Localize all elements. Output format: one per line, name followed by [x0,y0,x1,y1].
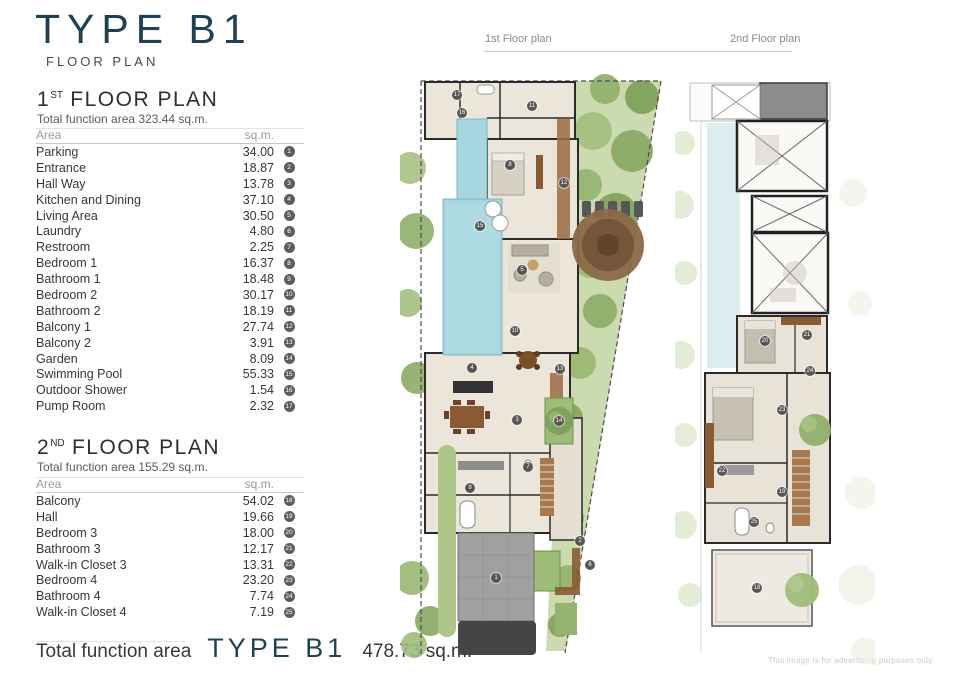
col-sqm: sq.m. [220,477,274,491]
area-name: Kitchen and Dining [36,193,220,207]
driveway [458,621,536,655]
table-row: Swimming Pool55.3315 [36,366,304,382]
area-value: 37.10 [220,193,274,207]
table-row: Balcony 127.7412 [36,319,304,335]
plan-number-badge: 24 [805,366,815,376]
row-number-badge: 11 [284,305,295,316]
plan-number-badge: 7 [523,462,533,472]
area-name: Bathroom 3 [36,542,220,556]
plan-number-badge: 14 [554,416,564,426]
row-number-badge: 25 [284,607,295,618]
second-floor-total: Total function area 155.29 sq.m. [37,460,208,474]
area-name: Hall Way [36,177,220,191]
second-floor-heading: 2ND FLOOR PLAN [37,436,220,460]
row-number-badge: 14 [284,353,295,364]
first-floor-plan-svg [400,73,670,661]
row-number-badge: 23 [284,575,295,586]
plan-number-badge: 21 [802,330,812,340]
area-name: Pump Room [36,399,220,413]
area-name: Bathroom 2 [36,304,220,318]
table-row: Bedroom 116.378 [36,255,304,271]
plan-number-badge: 17 [452,90,462,100]
table-row: Parking34.001 [36,144,304,160]
area-value: 7.19 [220,605,274,619]
side-garden-strip [438,445,456,637]
table-row: Balcony 23.9113 [36,335,304,351]
ordinal-sup: ST [50,90,63,101]
table-row: Hall Way13.783 [36,176,304,192]
table-row: Outdoor Shower1.5416 [36,382,304,398]
area-name: Bathroom 1 [36,272,220,286]
area-name: Swimming Pool [36,367,220,381]
ordinal-sup: ND [50,438,64,449]
table-header: Area sq.m. [36,128,304,144]
area-value: 54.02 [220,494,274,508]
area-value: 27.74 [220,320,274,334]
plan-number-badge: 25 [749,517,759,527]
plan-number-badge: 9 [465,483,475,493]
row-number-badge: 2 [284,162,295,173]
area-value: 2.32 [220,399,274,413]
first-floor-total: Total function area 323.44 sq.m. [37,112,208,126]
table-row: Bathroom 312.1721 [36,541,304,557]
plan-number-badge: 13 [555,364,565,374]
first-floor-plan-drawing: 1716118121551013431479261 [400,73,670,661]
row-number-badge: 18 [284,495,295,506]
area-name: Bedroom 4 [36,573,220,587]
col-area: Area [36,477,220,491]
row-number-badge: 6 [284,226,295,237]
area-value: 2.25 [220,240,274,254]
row-number-badge: 3 [284,178,295,189]
table-row: Laundry4.806 [36,223,304,239]
area-name: Balcony 2 [36,336,220,350]
row-number-badge: 20 [284,527,295,538]
area-value: 13.31 [220,558,274,572]
area-name: Restroom [36,240,220,254]
table-row: Walk-in Closet 47.1925 [36,604,304,620]
area-name: Outdoor Shower [36,383,220,397]
area-name: Bathroom 4 [36,589,220,603]
area-value: 1.54 [220,383,274,397]
row-number-badge: 22 [284,559,295,570]
table-row: Garden8.0914 [36,351,304,367]
area-name: Bedroom 1 [36,256,220,270]
area-name: Hall [36,510,220,524]
area-value: 18.87 [220,161,274,175]
table-row: Walk-in Closet 313.3122 [36,557,304,573]
row-number-badge: 19 [284,511,295,522]
second-floor-plan-label: 2nd Floor plan [730,33,800,45]
row-number-badge: 10 [284,289,295,300]
row-number-badge: 4 [284,194,295,205]
table-row: Restroom2.257 [36,239,304,255]
col-area: Area [36,128,220,142]
row-number-badge: 13 [284,337,295,348]
area-value: 12.17 [220,542,274,556]
plan-number-badge: 3 [512,415,522,425]
area-name: Laundry [36,224,220,238]
area-value: 3.91 [220,336,274,350]
main-block [705,373,830,543]
area-value: 13.78 [220,177,274,191]
area-value: 8.09 [220,352,274,366]
table-row: Entrance18.872 [36,160,304,176]
second-floor-plan-drawing: 2021242322192518 [675,73,875,665]
table-row: Bedroom 230.1710 [36,287,304,303]
table-row: Living Area30.505 [36,208,304,224]
area-value: 19.66 [220,510,274,524]
plan-number-badge: 5 [517,265,527,275]
first-floor-plan-label: 1st Floor plan [485,33,552,45]
first-floor-heading: 1ST FLOOR PLAN [37,88,218,112]
row-number-badge: 24 [284,591,295,602]
table-row: Kitchen and Dining37.104 [36,192,304,208]
area-value: 4.80 [220,224,274,238]
row-number-badge: 16 [284,385,295,396]
laundry-court [533,548,580,635]
table-row: Bathroom 47.7424 [36,588,304,604]
first-floor-table: Area sq.m. Parking34.001Entrance18.872Ha… [36,128,304,414]
area-value: 34.00 [220,145,274,159]
table-row: Pump Room2.3217 [36,398,304,414]
table-row: Bathroom 118.489 [36,271,304,287]
plan-number-badge: 6 [585,560,595,570]
second-floor-plan-svg [675,73,875,665]
row-number-badge: 9 [284,274,295,285]
row-number-badge: 21 [284,543,295,554]
footer-type: TYPE B1 [207,633,346,664]
plan-number-badge: 2 [575,536,585,546]
area-name: Living Area [36,209,220,223]
area-value: 30.50 [220,209,274,223]
row-number-badge: 1 [284,146,295,157]
area-name: Walk-in Closet 4 [36,605,220,619]
pool-below [707,123,740,368]
plan-number-badge: 19 [777,487,787,497]
area-value: 16.37 [220,256,274,270]
table-row: Bedroom 423.2023 [36,572,304,588]
plan-number-badge: 18 [752,583,762,593]
area-name: Garden [36,352,220,366]
area-value: 30.17 [220,288,274,302]
second-floor-rows: Balcony54.0218Hall19.6619Bedroom 318.002… [36,493,304,620]
plan-number-badge: 23 [777,405,787,415]
plan-number-badge: 15 [475,221,485,231]
table-row: Balcony54.0218 [36,493,304,509]
roof-areas [690,83,830,121]
area-name: Bedroom 2 [36,288,220,302]
area-value: 18.48 [220,272,274,286]
second-floor-table: Area sq.m. Balcony54.0218Hall19.6619Bedr… [36,477,304,620]
area-name: Bedroom 3 [36,526,220,540]
row-number-badge: 12 [284,321,295,332]
bedroom-4 [737,316,827,373]
plan-number-badge: 4 [467,363,477,373]
plan-number-badge: 10 [510,326,520,336]
page-subtitle: FLOOR PLAN [46,54,158,69]
area-name: Balcony [36,494,220,508]
area-name: Entrance [36,161,220,175]
area-name: Parking [36,145,220,159]
area-value: 23.20 [220,573,274,587]
row-number-badge: 15 [284,369,295,380]
page-title: TYPE B1 [35,6,253,53]
plan-number-badge: 22 [717,466,727,476]
area-name: Balcony 1 [36,320,220,334]
plan-number-badge: 1 [491,573,501,583]
area-value: 18.00 [220,526,274,540]
col-sqm: sq.m. [220,128,274,142]
row-number-badge: 8 [284,258,295,269]
plan-number-badge: 20 [760,336,770,346]
void-boxes [737,121,828,313]
footer-label: Total function area [36,641,191,663]
row-number-badge: 17 [284,401,295,412]
table-header: Area sq.m. [36,477,304,493]
area-value: 55.33 [220,367,274,381]
row-number-badge: 7 [284,242,295,253]
plan-label-rule [484,51,792,52]
first-floor-rows: Parking34.001Entrance18.872Hall Way13.78… [36,144,304,414]
area-value: 18.19 [220,304,274,318]
plan-number-badge: 16 [457,108,467,118]
plan-number-badge: 8 [505,160,515,170]
table-row: Bathroom 218.1911 [36,303,304,319]
table-row: Hall19.6619 [36,509,304,525]
plan-number-badge: 11 [527,101,537,111]
table-row: Bedroom 318.0020 [36,525,304,541]
row-number-badge: 5 [284,210,295,221]
area-value: 7.74 [220,589,274,603]
plan-number-badge: 12 [559,178,569,188]
area-name: Walk-in Closet 3 [36,558,220,572]
round-tree [572,209,644,281]
